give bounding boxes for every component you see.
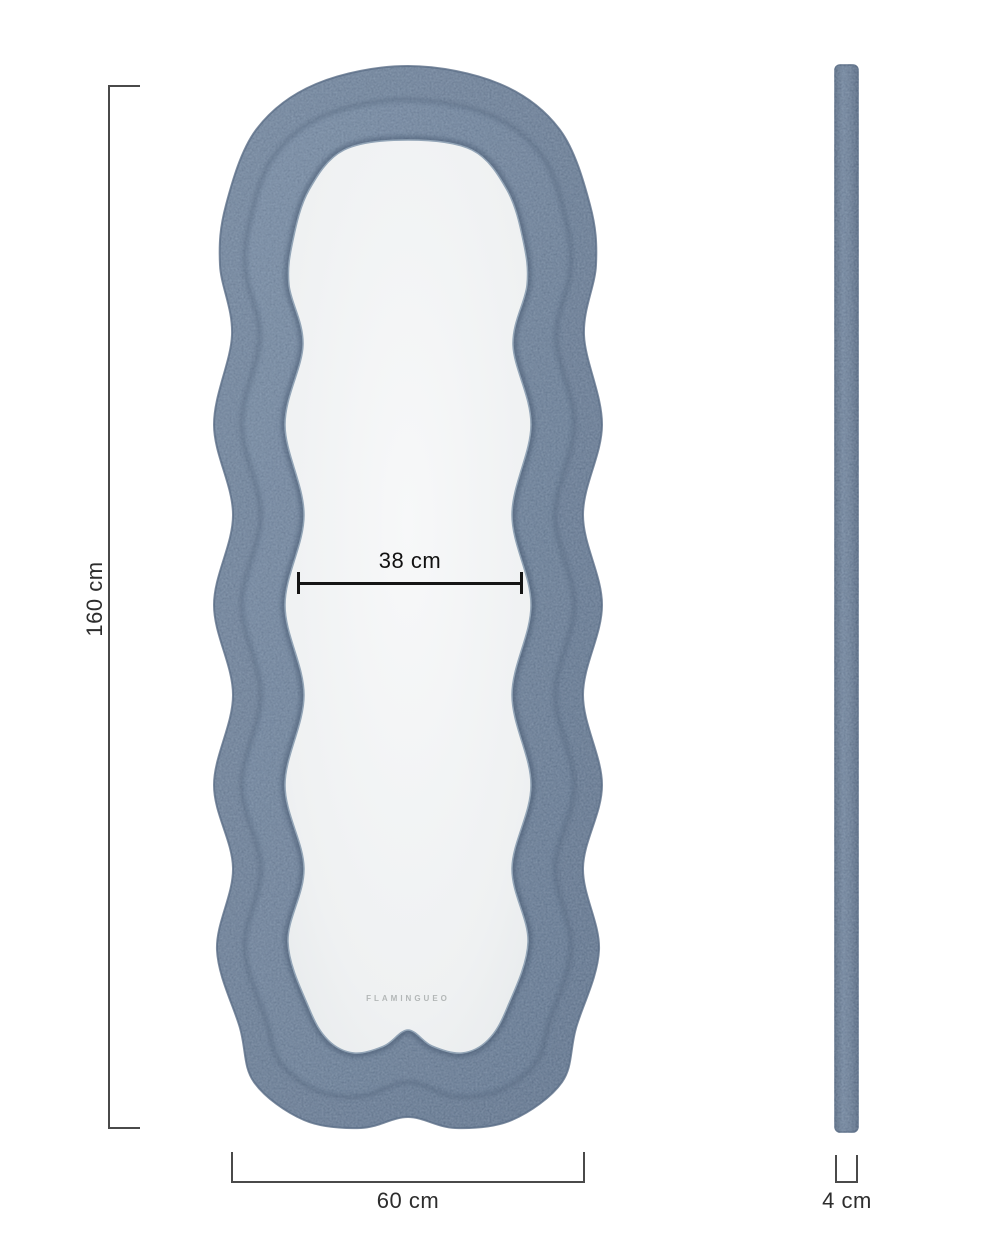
product-dimension-diagram: FLAMINGUEO 38 cm 160 cm 60 cm 4 cm	[0, 0, 1000, 1250]
mirror-front-view	[214, 66, 602, 1128]
inner-width-dimension-line	[297, 572, 523, 594]
height-dimension-label: 160 cm	[82, 539, 108, 659]
width-dimension-line	[231, 1152, 585, 1183]
mirror-illustration	[0, 0, 1000, 1250]
width-dimension-label: 60 cm	[231, 1188, 585, 1214]
depth-dimension-line	[835, 1155, 858, 1183]
mirror-side-view	[835, 65, 858, 1132]
height-dimension-line	[108, 85, 140, 1129]
side-profile-bar	[835, 65, 858, 1132]
mirror-glass	[285, 140, 531, 1053]
depth-dimension-label: 4 cm	[806, 1188, 888, 1214]
brand-watermark: FLAMINGUEO	[308, 994, 508, 1003]
inner-width-dimension-label: 38 cm	[297, 548, 523, 574]
